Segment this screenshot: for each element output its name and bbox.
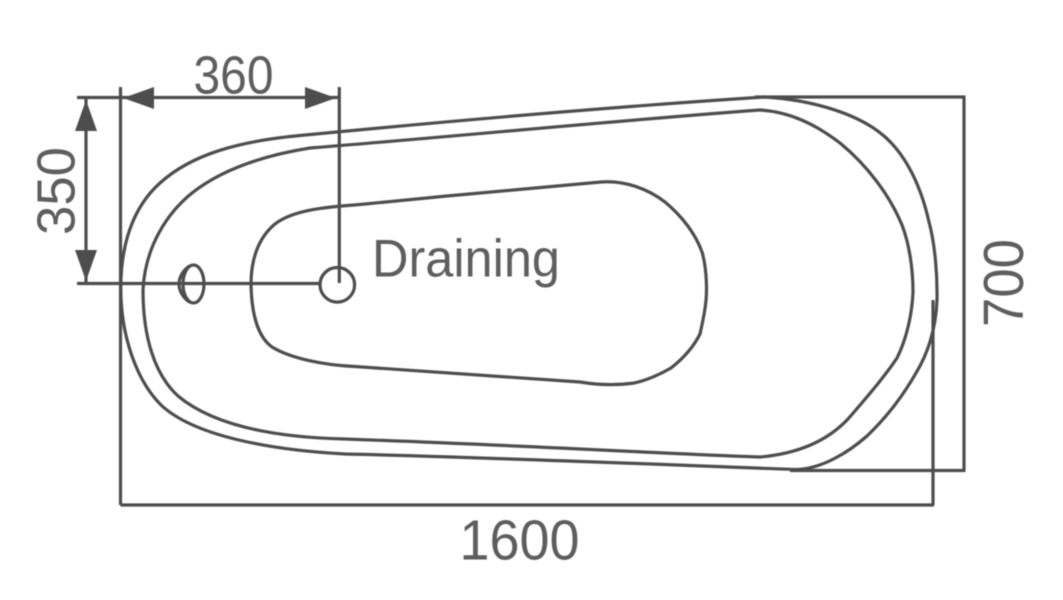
svg-text:360: 360	[194, 46, 274, 106]
svg-text:350: 350	[27, 147, 87, 235]
svg-text:1600: 1600	[460, 508, 580, 572]
svg-text:700: 700	[972, 239, 1036, 327]
svg-text:Draining: Draining	[372, 231, 560, 289]
